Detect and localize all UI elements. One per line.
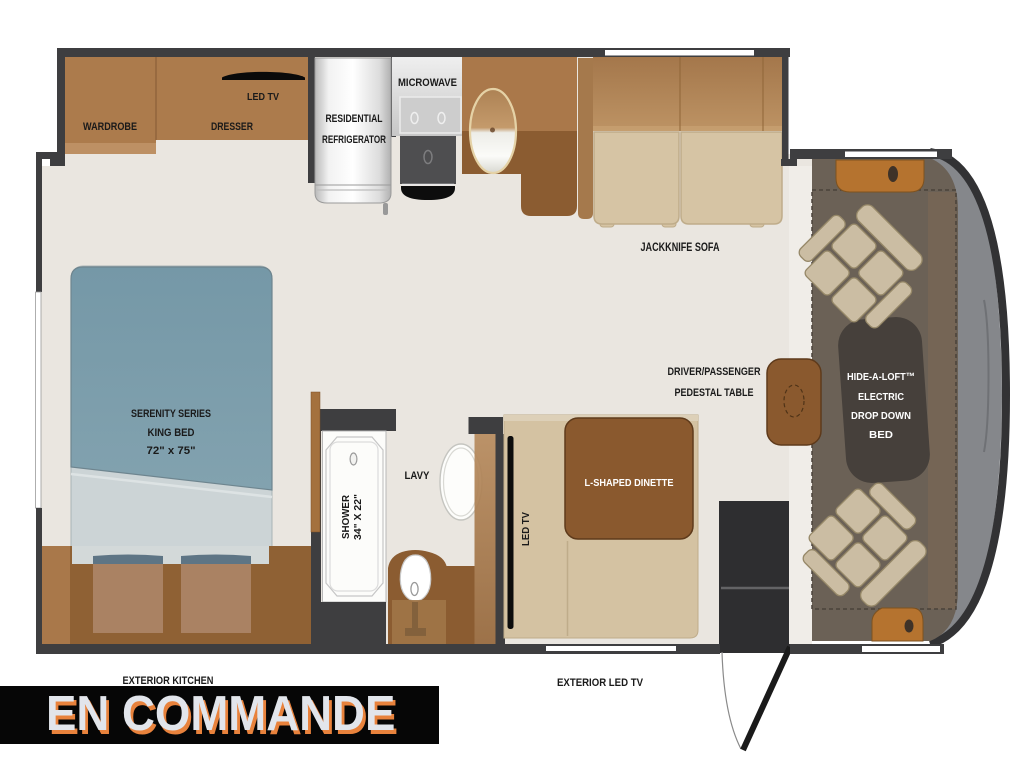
svg-text:BED: BED: [869, 429, 893, 441]
svg-text:KING BED: KING BED: [148, 427, 195, 439]
svg-text:EXTERIOR LED TV: EXTERIOR LED TV: [557, 677, 644, 689]
svg-text:REFRIGERATOR: REFRIGERATOR: [322, 134, 386, 146]
svg-text:PEDESTAL TABLE: PEDESTAL TABLE: [675, 387, 754, 399]
svg-text:HIDE-A-LOFT™: HIDE-A-LOFT™: [847, 371, 915, 383]
svg-text:WARDROBE: WARDROBE: [83, 121, 137, 133]
svg-text:SHOWER: SHOWER: [340, 495, 352, 539]
svg-text:SERENITY SERIES: SERENITY SERIES: [131, 408, 211, 420]
svg-text:34" X 22": 34" X 22": [352, 494, 364, 540]
svg-text:RESIDENTIAL: RESIDENTIAL: [326, 113, 383, 125]
svg-text:DROP DOWN: DROP DOWN: [851, 410, 911, 422]
svg-text:LED TV: LED TV: [247, 91, 279, 103]
svg-text:JACKKNIFE SOFA: JACKKNIFE SOFA: [641, 242, 720, 254]
svg-text:MICROWAVE: MICROWAVE: [398, 77, 457, 89]
svg-text:LED TV: LED TV: [521, 512, 532, 546]
svg-text:LAVY: LAVY: [405, 470, 431, 482]
svg-text:DRESSER: DRESSER: [211, 121, 253, 133]
svg-text:L-SHAPED DINETTE: L-SHAPED DINETTE: [585, 477, 674, 489]
svg-text:ELECTRIC: ELECTRIC: [858, 391, 904, 403]
svg-text:DRIVER/PASSENGER: DRIVER/PASSENGER: [668, 366, 761, 378]
svg-text:72" x 75": 72" x 75": [147, 445, 196, 457]
